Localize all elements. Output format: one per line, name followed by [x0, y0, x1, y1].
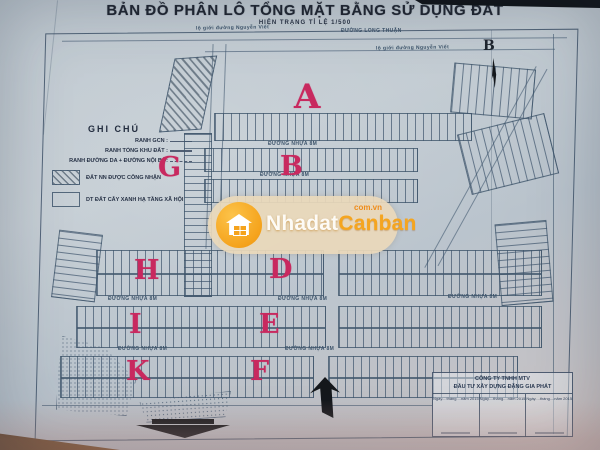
- lot-row-d-2: [338, 274, 542, 296]
- street-label: ĐƯỜNG NHỰA 8M: [108, 296, 157, 302]
- legend-line-label: RANH TỔNG KHU ĐẤT :: [46, 148, 168, 154]
- legend-line-label: RANH ĐƯỜNG DA + ĐƯỜNG NỘI BỘ:: [40, 158, 168, 164]
- lot-row-a: [214, 113, 472, 141]
- legend-swatch-item: DT ĐẤT CÂY XANH HẠ TẦNG XÃ HỘI: [52, 192, 183, 207]
- lot-row-e-2: [338, 328, 542, 348]
- legend-header: GHI CHÚ: [88, 124, 168, 134]
- street-label: ĐƯỜNG NHỰA 8M: [268, 141, 317, 147]
- lot-row-i-2: [76, 328, 326, 348]
- street-label: ĐƯỜNG NHỰA 8M: [448, 294, 497, 300]
- legend-line-label: RANH GCN :: [46, 138, 168, 144]
- company-name-line2: ĐẦU TƯ XÂY DỰNG ĐẶNG GIA PHÁT: [433, 384, 572, 390]
- road-label-nguyen-viet-right: lộ giới đường Nguyễn Viết: [376, 44, 449, 51]
- street-label: ĐƯỜNG NHỰA 8M: [278, 296, 327, 302]
- zone-label-b: B: [280, 153, 303, 180]
- legend-swatch-label: DT ĐẤT CÂY XANH HẠ TẦNG XÃ HỘI: [86, 197, 183, 203]
- house-window-icon: [233, 225, 247, 236]
- zone-label-e: E: [259, 311, 280, 338]
- photo-of-land-plot-map: BẢN ĐỒ PHÂN LÔ TỔNG MẶT BẰNG SỬ DỤNG ĐẤT…: [0, 0, 600, 450]
- legend-swatch-empty: [52, 192, 80, 207]
- lot-row-e-1: [338, 306, 542, 328]
- watermark-logo-circle: [216, 202, 262, 248]
- watermark-domain: com.vn: [354, 203, 382, 212]
- photo-bottom-tint: [0, 400, 600, 450]
- legend-swatch-item: ĐẤT NN ĐƯỢC CÔNG NHẬN: [52, 170, 161, 185]
- watermark-badge: NhadatCanban com.vn: [208, 196, 398, 254]
- road-label-long-thuan: ĐƯỜNG LONG THUẬN: [341, 28, 402, 34]
- watermark-brand-part1: Nhadat: [266, 212, 338, 235]
- lot-row-b-1: [204, 148, 418, 172]
- legend-line-item: RANH GCN :: [46, 138, 192, 144]
- lot-row-i-1: [76, 306, 326, 328]
- zone-label-f: F: [250, 358, 269, 385]
- legend-swatch-hatched: [52, 170, 80, 185]
- company-name-line1: CÔNG TY TNHH MTV: [433, 376, 572, 382]
- legend-swatch-label: ĐẤT NN ĐƯỢC CÔNG NHẬN: [86, 175, 161, 181]
- zone-label-d: D: [269, 256, 292, 283]
- street-label: ĐƯỜNG NHỰA 8M: [285, 346, 334, 352]
- street-label: ĐƯỜNG NHỰA 8M: [118, 346, 167, 352]
- zone-label-a: A: [294, 80, 320, 114]
- watermark-brand-part2: Canban: [338, 212, 416, 235]
- zone-label-h: H: [134, 257, 160, 284]
- zone-label-g: G: [158, 154, 181, 181]
- zone-label-k: K: [126, 358, 149, 385]
- road-label-nguyen-viet-left: lộ giới đường Nguyễn Viết: [196, 24, 269, 31]
- compass-north-label: B: [483, 38, 495, 54]
- watermark-brand: NhadatCanban: [266, 212, 417, 236]
- zone-label-i: I: [129, 311, 142, 338]
